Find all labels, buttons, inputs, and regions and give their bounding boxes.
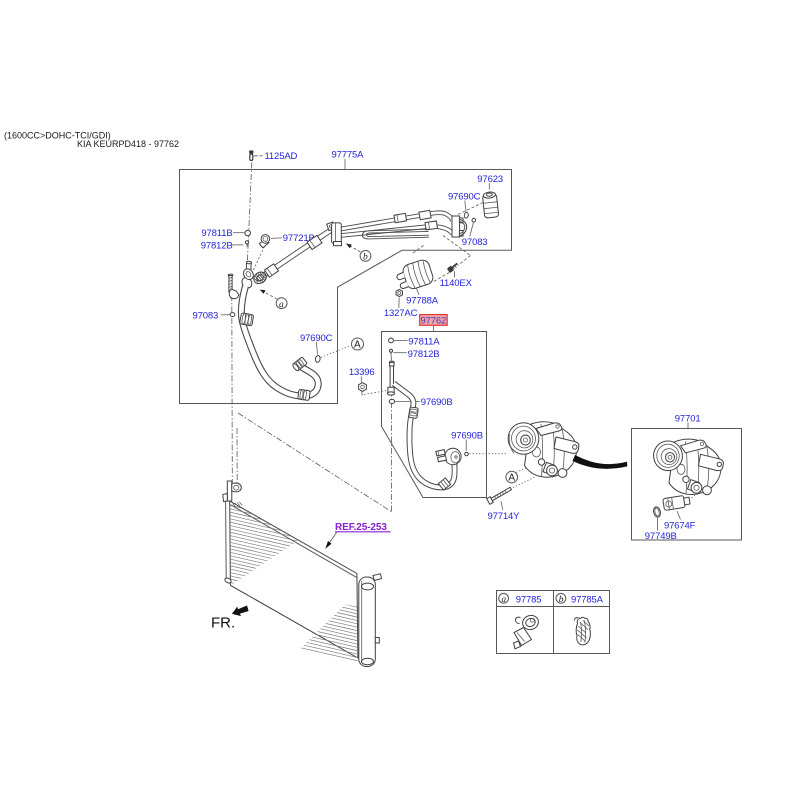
svg-text:97762: 97762 (421, 315, 447, 326)
svg-text:a: a (501, 595, 506, 605)
svg-text:KIA KEURPD418 - 97762: KIA KEURPD418 - 97762 (77, 139, 179, 149)
svg-text:b: b (559, 595, 564, 605)
svg-text:b: b (363, 253, 368, 263)
svg-text:97714Y: 97714Y (488, 511, 521, 522)
svg-text:97811B: 97811B (201, 228, 232, 239)
svg-text:1140EX: 1140EX (440, 278, 473, 289)
svg-text:97083: 97083 (462, 237, 488, 248)
svg-text:FR.: FR. (211, 615, 235, 632)
svg-text:97812B: 97812B (201, 240, 233, 251)
svg-text:97785: 97785 (516, 595, 542, 606)
svg-text:1125AD: 1125AD (265, 151, 298, 162)
svg-text:97812B: 97812B (408, 349, 440, 360)
svg-text:97785A: 97785A (571, 595, 604, 606)
svg-text:97690C: 97690C (448, 192, 481, 203)
svg-text:1327AC: 1327AC (384, 308, 418, 319)
svg-text:97674F: 97674F (664, 520, 696, 531)
svg-text:97623: 97623 (477, 174, 503, 185)
svg-text:a: a (279, 300, 284, 310)
svg-text:A: A (508, 473, 515, 484)
svg-text:97788A: 97788A (406, 295, 439, 306)
svg-text:97775A: 97775A (332, 150, 365, 161)
svg-text:13396: 13396 (349, 367, 375, 378)
svg-text:97749B: 97749B (645, 531, 677, 542)
svg-text:97811A: 97811A (408, 336, 440, 347)
svg-text:97083: 97083 (193, 310, 219, 321)
svg-text:97690B: 97690B (421, 397, 453, 408)
svg-text:A: A (354, 340, 361, 351)
svg-text:97690B: 97690B (451, 430, 483, 441)
